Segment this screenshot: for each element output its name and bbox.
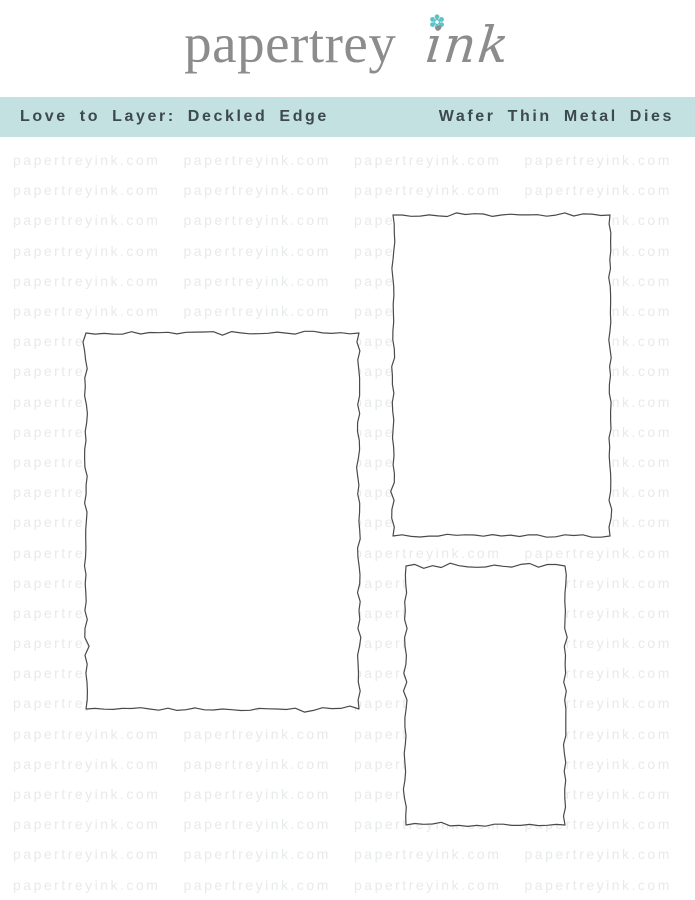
watermark-text: papertreyink.com <box>525 605 695 621</box>
watermark-row: papertreyink.compapertreyink.compapertre… <box>13 719 695 749</box>
watermark-text: papertreyink.com <box>525 514 695 530</box>
watermark-row: papertreyink.compapertreyink.compapertre… <box>13 507 695 537</box>
watermark-text: papertreyink.com <box>525 333 695 349</box>
watermark-text: papertreyink.com <box>184 665 355 681</box>
watermark-text: papertreyink.com <box>13 484 184 500</box>
watermark-text: papertreyink.com <box>525 877 695 893</box>
product-type: Wafer Thin Metal Dies <box>439 108 674 126</box>
watermark-row: papertreyink.compapertreyink.compapertre… <box>13 688 695 718</box>
watermark-text: papertreyink.com <box>354 243 525 259</box>
watermark-row: papertreyink.compapertreyink.compapertre… <box>13 266 695 296</box>
watermark-text: papertreyink.com <box>525 635 695 651</box>
product-image-page: papertrey ink Love to Layer: Deckled Edg… <box>0 0 695 900</box>
watermark-text: papertreyink.com <box>525 545 695 561</box>
watermark-text: papertreyink.com <box>184 243 355 259</box>
watermark-text: papertreyink.com <box>354 575 525 591</box>
watermark-text: papertreyink.com <box>354 877 525 893</box>
watermark-text: papertreyink.com <box>184 363 355 379</box>
watermark-row: papertreyink.compapertreyink.compapertre… <box>13 356 695 386</box>
watermark-text: papertreyink.com <box>525 394 695 410</box>
watermark-row: papertreyink.compapertreyink.compapertre… <box>13 145 695 175</box>
watermark-text: papertreyink.com <box>354 484 525 500</box>
watermark-text: papertreyink.com <box>354 514 525 530</box>
watermark-text: papertreyink.com <box>13 635 184 651</box>
watermark-text: papertreyink.com <box>184 695 355 711</box>
watermark-text: papertreyink.com <box>354 212 525 228</box>
watermark-text: papertreyink.com <box>13 243 184 259</box>
watermark-text: papertreyink.com <box>13 303 184 319</box>
watermark-text: papertreyink.com <box>184 635 355 651</box>
watermark-text: papertreyink.com <box>525 695 695 711</box>
watermark-text: papertreyink.com <box>13 695 184 711</box>
watermark-text: papertreyink.com <box>13 424 184 440</box>
watermark-text: papertreyink.com <box>354 756 525 772</box>
watermark-text: papertreyink.com <box>184 454 355 470</box>
watermark-text: papertreyink.com <box>525 756 695 772</box>
watermark-text: papertreyink.com <box>354 333 525 349</box>
watermark-text: papertreyink.com <box>13 273 184 289</box>
watermark-row: papertreyink.compapertreyink.compapertre… <box>13 296 695 326</box>
watermark-text: papertreyink.com <box>525 454 695 470</box>
watermark-text: papertreyink.com <box>354 635 525 651</box>
watermark-text: papertreyink.com <box>525 786 695 802</box>
watermark-text: papertreyink.com <box>13 846 184 862</box>
watermark-text: papertreyink.com <box>184 545 355 561</box>
watermark-text: papertreyink.com <box>354 726 525 742</box>
watermark-text: papertreyink.com <box>184 575 355 591</box>
watermark-text: papertreyink.com <box>525 182 695 198</box>
watermark-text: papertreyink.com <box>354 786 525 802</box>
watermark-text: papertreyink.com <box>13 786 184 802</box>
watermark-text: papertreyink.com <box>525 152 695 168</box>
watermark-text: papertreyink.com <box>525 424 695 440</box>
watermark-text: papertreyink.com <box>13 665 184 681</box>
watermark-text: papertreyink.com <box>13 605 184 621</box>
watermark-text: papertreyink.com <box>13 756 184 772</box>
watermark-layer: papertreyink.compapertreyink.compapertre… <box>0 145 695 900</box>
watermark-text: papertreyink.com <box>354 152 525 168</box>
watermark-row: papertreyink.compapertreyink.compapertre… <box>13 749 695 779</box>
watermark-row: papertreyink.compapertreyink.compapertre… <box>13 205 695 235</box>
watermark-text: papertreyink.com <box>184 846 355 862</box>
watermark-text: papertreyink.com <box>13 514 184 530</box>
watermark-text: papertreyink.com <box>13 182 184 198</box>
watermark-text: papertreyink.com <box>13 333 184 349</box>
watermark-row: papertreyink.compapertreyink.compapertre… <box>13 417 695 447</box>
watermark-text: papertreyink.com <box>354 605 525 621</box>
watermark-text: papertreyink.com <box>354 454 525 470</box>
watermark-text: papertreyink.com <box>354 424 525 440</box>
watermark-row: papertreyink.compapertreyink.compapertre… <box>13 658 695 688</box>
brand-name-serif: papertrey <box>184 14 396 75</box>
watermark-text: papertreyink.com <box>184 152 355 168</box>
watermark-text: papertreyink.com <box>13 877 184 893</box>
watermark-text: papertreyink.com <box>184 816 355 832</box>
watermark-text: papertreyink.com <box>13 394 184 410</box>
watermark-text: papertreyink.com <box>13 545 184 561</box>
brand-name-script-wrap: ink <box>426 20 511 70</box>
watermark-text: papertreyink.com <box>525 243 695 259</box>
watermark-text: papertreyink.com <box>354 182 525 198</box>
watermark-text: papertreyink.com <box>184 303 355 319</box>
brand-name-script: ink <box>424 20 514 70</box>
watermark-text: papertreyink.com <box>354 846 525 862</box>
watermark-text: papertreyink.com <box>184 514 355 530</box>
watermark-text: papertreyink.com <box>354 394 525 410</box>
watermark-text: papertreyink.com <box>354 545 525 561</box>
watermark-text: papertreyink.com <box>184 726 355 742</box>
watermark-text: papertreyink.com <box>525 726 695 742</box>
watermark-text: papertreyink.com <box>525 665 695 681</box>
watermark-row: papertreyink.compapertreyink.compapertre… <box>13 809 695 839</box>
watermark-text: papertreyink.com <box>525 363 695 379</box>
watermark-text: papertreyink.com <box>184 484 355 500</box>
watermark-text: papertreyink.com <box>13 454 184 470</box>
watermark-text: papertreyink.com <box>354 695 525 711</box>
watermark-text: papertreyink.com <box>13 816 184 832</box>
watermark-row: papertreyink.compapertreyink.compapertre… <box>13 870 695 900</box>
watermark-row: papertreyink.compapertreyink.compapertre… <box>13 326 695 356</box>
watermark-row: papertreyink.compapertreyink.compapertre… <box>13 236 695 266</box>
watermark-row: papertreyink.compapertreyink.compapertre… <box>13 598 695 628</box>
watermark-text: papertreyink.com <box>13 726 184 742</box>
watermark-text: papertreyink.com <box>13 363 184 379</box>
watermark-row: papertreyink.compapertreyink.compapertre… <box>13 568 695 598</box>
watermark-row: papertreyink.compapertreyink.compapertre… <box>13 477 695 507</box>
watermark-text: papertreyink.com <box>184 182 355 198</box>
watermark-text: papertreyink.com <box>184 605 355 621</box>
watermark-text: papertreyink.com <box>354 665 525 681</box>
watermark-text: papertreyink.com <box>184 786 355 802</box>
watermark-text: papertreyink.com <box>184 333 355 349</box>
watermark-text: papertreyink.com <box>184 877 355 893</box>
watermark-text: papertreyink.com <box>354 303 525 319</box>
watermark-text: papertreyink.com <box>13 152 184 168</box>
watermark-row: papertreyink.compapertreyink.compapertre… <box>13 839 695 869</box>
watermark-text: papertreyink.com <box>525 484 695 500</box>
watermark-text: papertreyink.com <box>525 212 695 228</box>
watermark-text: papertreyink.com <box>525 273 695 289</box>
watermark-row: papertreyink.compapertreyink.compapertre… <box>13 628 695 658</box>
watermark-text: papertreyink.com <box>354 273 525 289</box>
watermark-text: papertreyink.com <box>354 363 525 379</box>
brand-logo: papertrey ink <box>0 0 695 97</box>
watermark-text: papertreyink.com <box>13 575 184 591</box>
watermark-text: papertreyink.com <box>525 575 695 591</box>
watermark-row: papertreyink.compapertreyink.compapertre… <box>13 175 695 205</box>
watermark-text: papertreyink.com <box>184 394 355 410</box>
watermark-text: papertreyink.com <box>184 424 355 440</box>
title-banner: Love to Layer: Deckled Edge Wafer Thin M… <box>0 97 695 137</box>
watermark-row: papertreyink.compapertreyink.compapertre… <box>13 537 695 567</box>
product-title: Love to Layer: Deckled Edge <box>20 108 329 126</box>
watermark-row: papertreyink.compapertreyink.compapertre… <box>13 387 695 417</box>
watermark-text: papertreyink.com <box>354 816 525 832</box>
watermark-text: papertreyink.com <box>525 303 695 319</box>
watermark-text: papertreyink.com <box>13 212 184 228</box>
watermark-text: papertreyink.com <box>525 816 695 832</box>
watermark-text: papertreyink.com <box>184 756 355 772</box>
watermark-row: papertreyink.compapertreyink.compapertre… <box>13 447 695 477</box>
watermark-text: papertreyink.com <box>184 273 355 289</box>
watermark-text: papertreyink.com <box>184 212 355 228</box>
watermark-text: papertreyink.com <box>525 846 695 862</box>
watermark-row: papertreyink.compapertreyink.compapertre… <box>13 779 695 809</box>
